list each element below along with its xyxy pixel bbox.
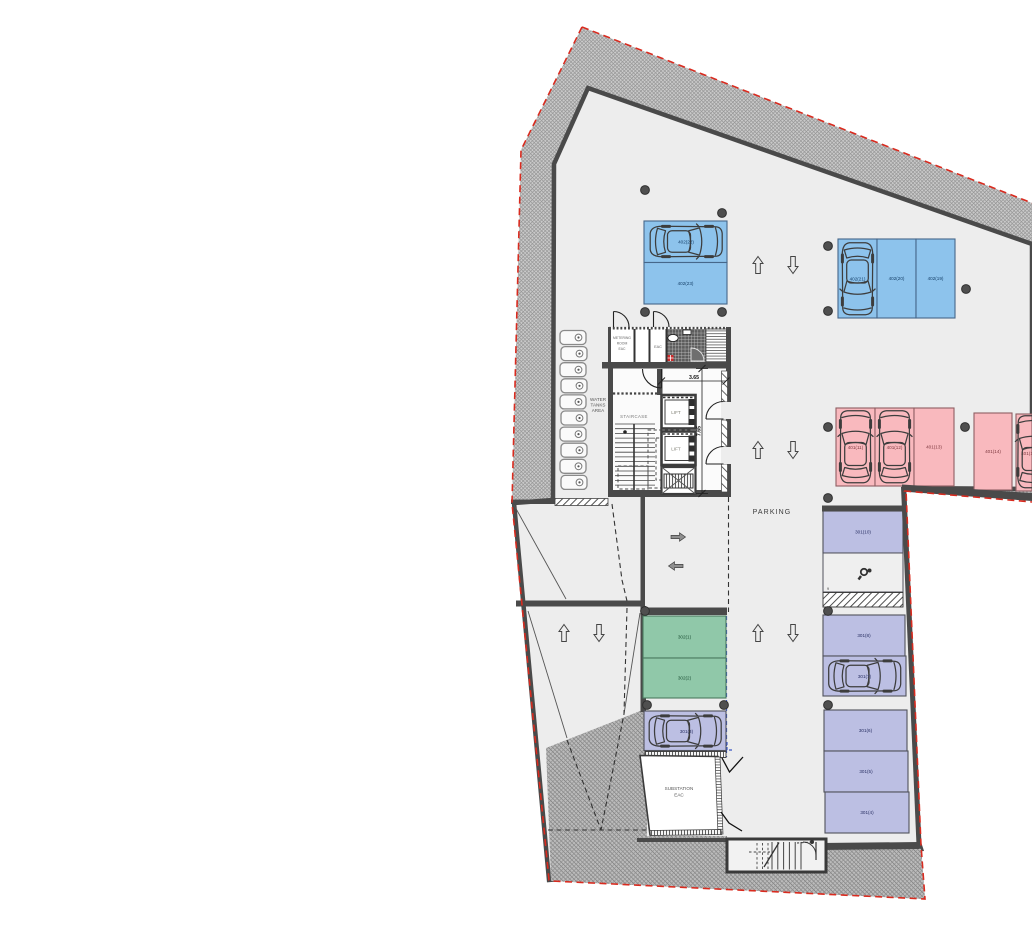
svg-text:9: 9 <box>827 587 829 591</box>
svg-text:EAC: EAC <box>674 793 684 798</box>
svg-text:402(20): 402(20) <box>889 276 905 281</box>
svg-text:301(7): 301(7) <box>858 674 872 679</box>
svg-text:3.65: 3.65 <box>689 375 699 381</box>
svg-text:7.65: 7.65 <box>697 426 703 436</box>
svg-text:WATER: WATER <box>590 397 607 402</box>
svg-text:301(8): 301(8) <box>857 633 871 638</box>
svg-text:ROOM: ROOM <box>617 342 628 346</box>
svg-text:301(3): 301(3) <box>680 729 694 734</box>
svg-text:401(13): 401(13) <box>926 445 942 450</box>
svg-text:402(23): 402(23) <box>678 281 694 286</box>
svg-text:METERING: METERING <box>613 336 631 340</box>
svg-text:TANKS: TANKS <box>591 403 606 408</box>
svg-text:301(10): 301(10) <box>855 530 871 535</box>
svg-text:402(22): 402(22) <box>678 240 694 245</box>
svg-text:LIFT: LIFT <box>671 447 681 452</box>
svg-text:401(12): 401(12) <box>887 445 903 450</box>
svg-text:301(6): 301(6) <box>859 728 873 733</box>
svg-text:STAIRCASE: STAIRCASE <box>620 414 648 419</box>
svg-text:EAC: EAC <box>619 347 627 351</box>
svg-text:402(21): 402(21) <box>850 277 866 282</box>
svg-text:302(1): 302(1) <box>678 635 692 640</box>
svg-text:LIFT: LIFT <box>671 410 681 415</box>
svg-text:302(2): 302(2) <box>678 676 692 681</box>
svg-text:402(19): 402(19) <box>928 276 944 281</box>
svg-text:SUBSTATION: SUBSTATION <box>665 786 694 791</box>
svg-text:401(14): 401(14) <box>985 449 1001 454</box>
svg-text:EAC: EAC <box>654 345 662 349</box>
svg-text:401(11): 401(11) <box>848 445 864 450</box>
svg-text:AREA: AREA <box>592 408 605 413</box>
svg-text:301(4): 301(4) <box>860 810 874 815</box>
svg-text:PARKING: PARKING <box>753 509 792 516</box>
svg-text:301(5): 301(5) <box>859 769 873 774</box>
